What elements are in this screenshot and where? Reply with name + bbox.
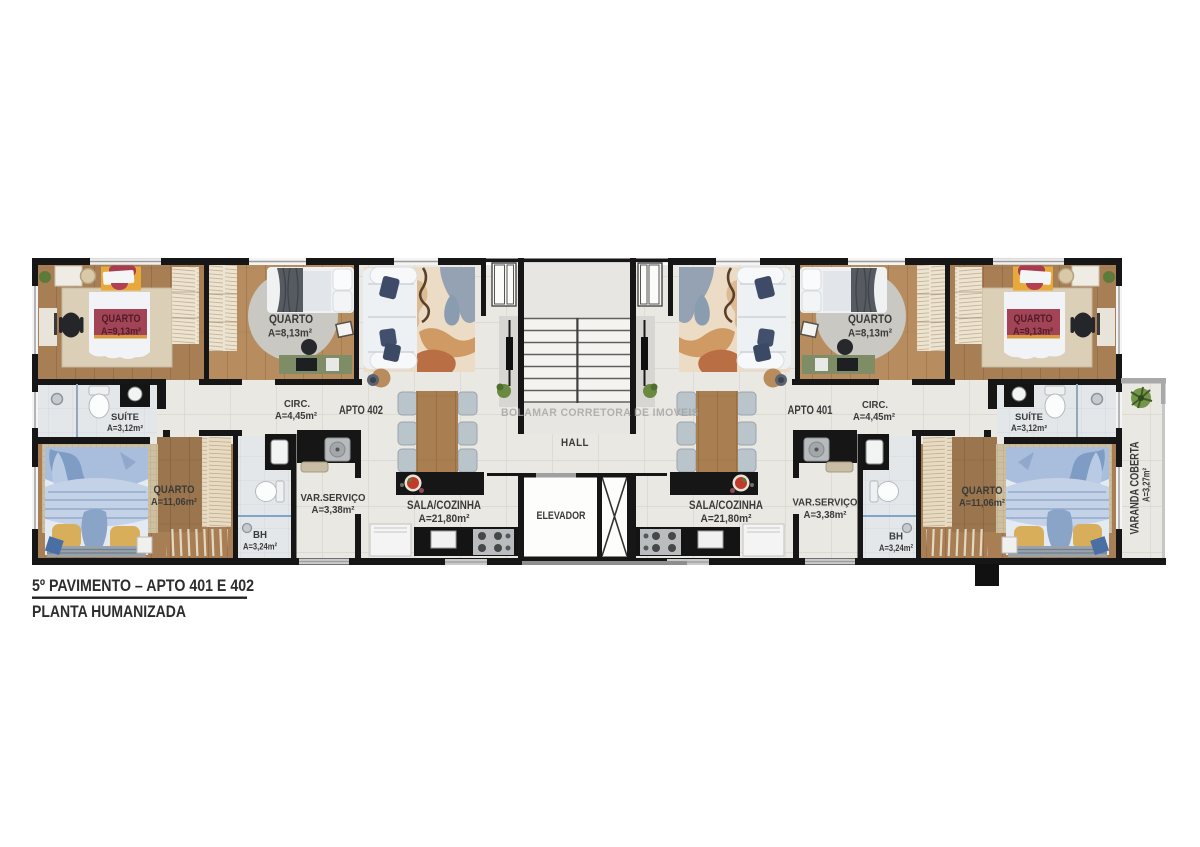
svg-text:A=3,24m²: A=3,24m² xyxy=(879,543,913,554)
svg-text:A=21,80m²: A=21,80m² xyxy=(419,513,470,525)
svg-text:BH: BH xyxy=(253,530,267,541)
svg-text:QUARTO: QUARTO xyxy=(154,484,195,496)
svg-text:BOLAMAR CORRETORA DE IMOVEIS: BOLAMAR CORRETORA DE IMOVEIS xyxy=(501,407,699,419)
svg-text:CIRC.: CIRC. xyxy=(862,399,888,411)
svg-text:HALL: HALL xyxy=(561,437,589,449)
svg-text:A=8,13m²: A=8,13m² xyxy=(268,328,312,340)
svg-text:A=9,13m²: A=9,13m² xyxy=(1013,326,1053,338)
svg-text:A=3,27m²: A=3,27m² xyxy=(1142,467,1153,502)
svg-text:A=3,12m²: A=3,12m² xyxy=(1011,423,1047,433)
svg-text:SUÍTE: SUÍTE xyxy=(111,412,139,423)
svg-text:A=4,45m²: A=4,45m² xyxy=(853,412,896,423)
svg-text:A=3,12m²: A=3,12m² xyxy=(107,423,143,433)
svg-text:QUARTO: QUARTO xyxy=(962,485,1003,497)
svg-text:A=21,80m²: A=21,80m² xyxy=(701,513,752,525)
svg-text:A=3,38m²: A=3,38m² xyxy=(312,505,356,516)
svg-text:VAR.SERVIÇO: VAR.SERVIÇO xyxy=(301,492,366,504)
svg-text:A=3,38m²: A=3,38m² xyxy=(804,510,848,521)
svg-text:SUÍTE: SUÍTE xyxy=(1015,412,1043,423)
svg-text:BH: BH xyxy=(889,532,903,543)
svg-text:VARANDA COBERTA: VARANDA COBERTA xyxy=(1128,441,1142,534)
svg-text:A=11,06m²: A=11,06m² xyxy=(959,497,1005,509)
svg-text:A=3,24m²: A=3,24m² xyxy=(243,542,277,553)
svg-text:A=11,06m²: A=11,06m² xyxy=(151,496,197,508)
svg-text:SALA/COZINHA: SALA/COZINHA xyxy=(689,500,763,512)
svg-text:A=4,45m²: A=4,45m² xyxy=(275,411,318,422)
svg-text:ELEVADOR: ELEVADOR xyxy=(537,510,586,522)
svg-text:5º PAVIMENTO – APTO 401 E 402: 5º PAVIMENTO – APTO 401 E 402 xyxy=(32,576,254,595)
svg-text:PLANTA HUMANIZADA: PLANTA HUMANIZADA xyxy=(32,602,186,621)
svg-text:VAR.SERVIÇO: VAR.SERVIÇO xyxy=(793,497,858,509)
svg-text:A=8,13m²: A=8,13m² xyxy=(848,328,892,340)
svg-text:QUARTO: QUARTO xyxy=(269,314,313,326)
svg-text:SALA/COZINHA: SALA/COZINHA xyxy=(407,500,481,512)
svg-text:QUARTO: QUARTO xyxy=(848,314,892,326)
svg-text:QUARTO: QUARTO xyxy=(1014,313,1053,325)
svg-text:QUARTO: QUARTO xyxy=(102,313,141,325)
svg-text:CIRC.: CIRC. xyxy=(284,398,310,410)
svg-text:A=9,13m²: A=9,13m² xyxy=(101,326,141,338)
svg-text:APTO 402: APTO 402 xyxy=(339,405,383,417)
svg-text:APTO 401: APTO 401 xyxy=(788,405,833,417)
